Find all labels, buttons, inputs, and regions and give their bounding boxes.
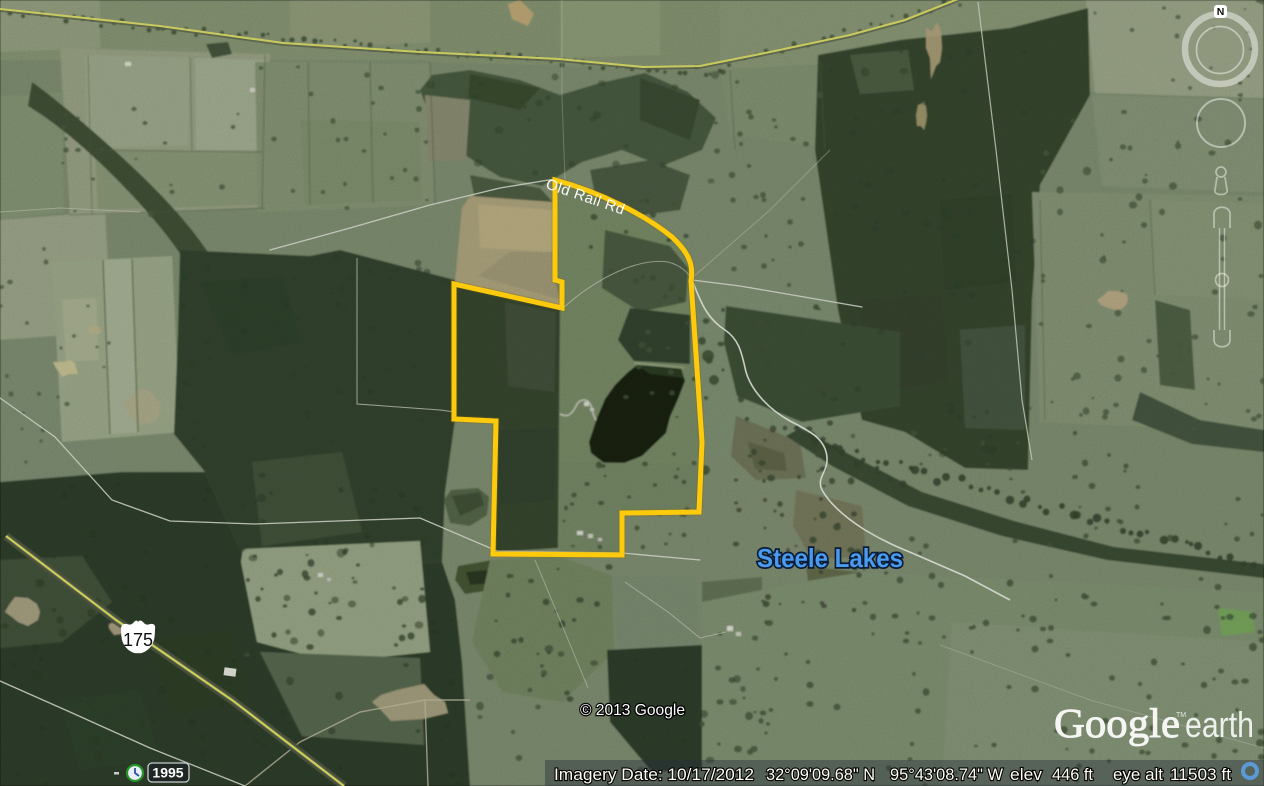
svg-text:11503 ft: 11503 ft <box>1170 765 1231 784</box>
svg-text:eye alt: eye alt <box>1113 765 1163 784</box>
svg-text:446 ft: 446 ft <box>1052 765 1093 784</box>
svg-text:earth: earth <box>1185 704 1254 745</box>
svg-text:elev: elev <box>1010 765 1043 784</box>
svg-text:TM: TM <box>1176 712 1186 719</box>
svg-text:1995: 1995 <box>152 765 183 781</box>
svg-text:175: 175 <box>123 630 153 650</box>
svg-text:95°43'08.74" W: 95°43'08.74" W <box>890 765 1003 784</box>
svg-text:Steele Lakes: Steele Lakes <box>757 543 903 573</box>
svg-text:© 2013 Google: © 2013 Google <box>580 702 685 719</box>
svg-text:Imagery Date: 10/17/2012: Imagery Date: 10/17/2012 <box>554 765 754 784</box>
svg-text:Google: Google <box>1054 700 1180 746</box>
svg-text:32°09'09.68" N: 32°09'09.68" N <box>766 765 875 784</box>
svg-text:N: N <box>1217 6 1225 18</box>
